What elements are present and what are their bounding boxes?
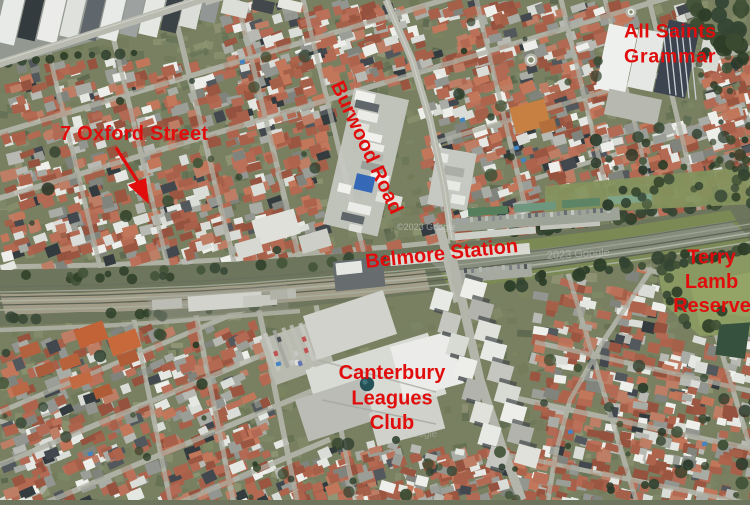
svg-text:7 Oxford Street: 7 Oxford Street [60, 123, 208, 145]
svg-text:Club: Club [370, 412, 414, 434]
svg-text:©2023 Google: ©2023 Google [397, 222, 455, 232]
svg-text:Leagues: Leagues [351, 388, 432, 410]
svg-text:Reserve: Reserve [673, 295, 750, 317]
svg-text:Lamb: Lamb [685, 271, 738, 293]
svg-text:Canterbury: Canterbury [339, 362, 447, 384]
svg-text:Grammar: Grammar [624, 46, 716, 68]
svg-text:All Saints: All Saints [624, 21, 716, 43]
svg-text:Terry: Terry [687, 247, 736, 269]
